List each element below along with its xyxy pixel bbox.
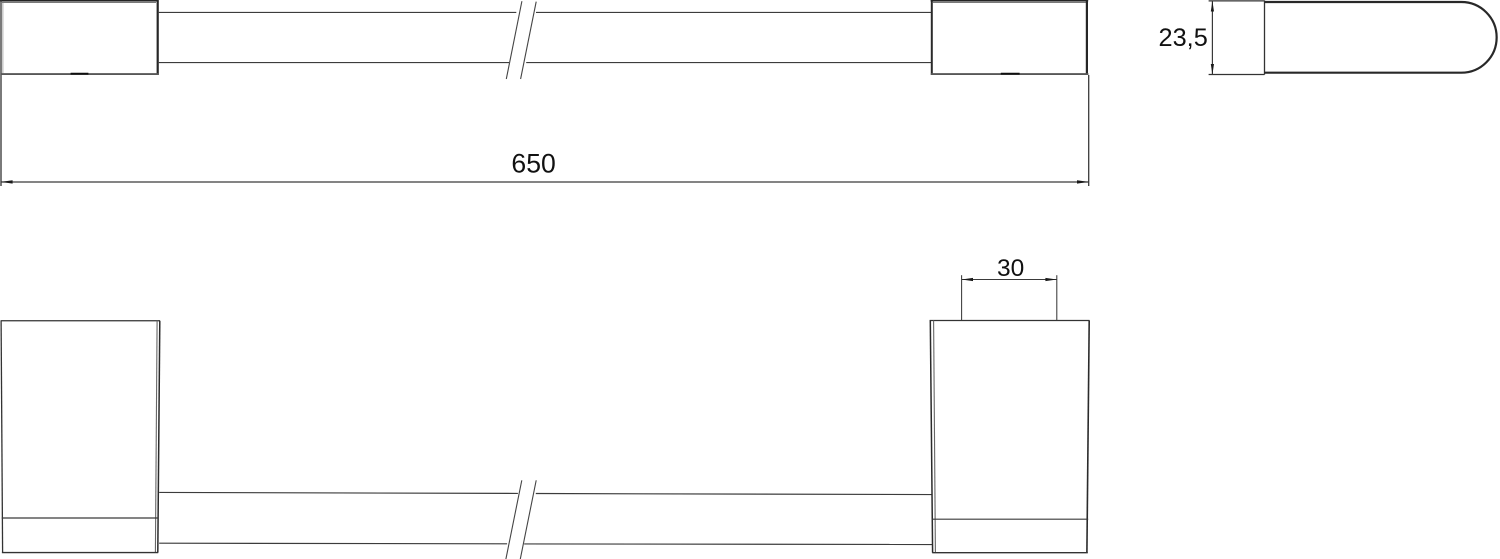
svg-text:30: 30	[997, 255, 1024, 282]
svg-text:650: 650	[511, 149, 555, 179]
svg-text:23,5: 23,5	[1159, 24, 1208, 52]
